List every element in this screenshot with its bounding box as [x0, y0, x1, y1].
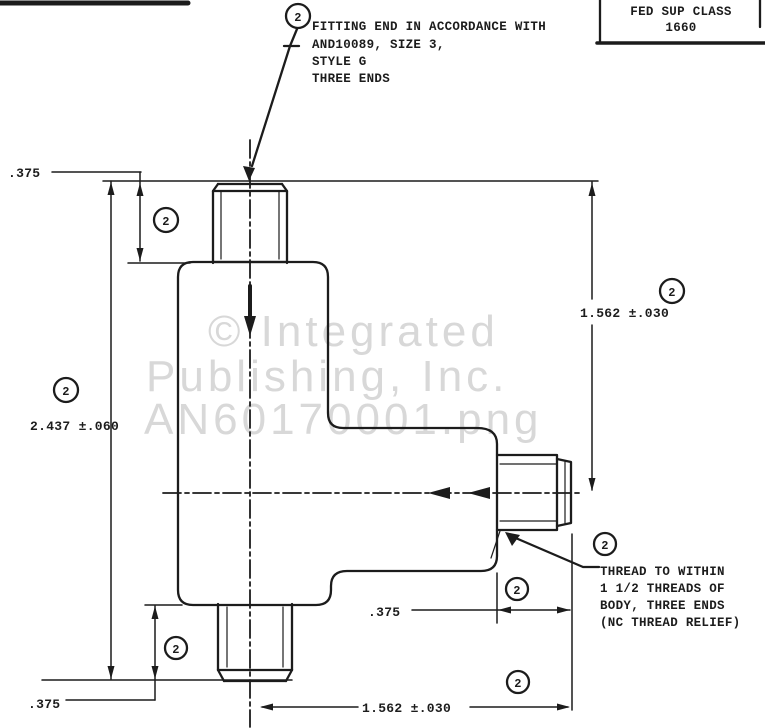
dim-left-2437-value: 2.437 ±.060	[30, 419, 119, 434]
dim-right-1562-value: 1.562 ±.030	[580, 306, 669, 321]
flow-arrow-left-icon	[468, 487, 490, 499]
flag-bottom-left: 2	[165, 637, 187, 659]
flag-right: 2	[660, 279, 684, 303]
flag-value: 2	[172, 643, 180, 657]
arrowhead-icon	[137, 248, 144, 261]
title-block: FED SUP CLASS 1660	[597, 0, 765, 43]
arrowhead-icon	[137, 183, 144, 196]
arrowhead-icon	[589, 183, 596, 196]
fitting-note-line4: THREE ENDS	[312, 72, 390, 86]
fitting-note-line1: FITTING END IN ACCORDANCE WITH	[312, 20, 546, 34]
fed-sup-class-label: FED SUP CLASS	[630, 5, 732, 19]
flag-mid-375: 2	[506, 578, 528, 600]
thread-note: THREAD TO WITHIN 1 1/2 THREADS OF BODY, …	[505, 532, 740, 630]
flag-value: 2	[513, 584, 521, 598]
fitting-note-line3: STYLE G	[312, 55, 367, 69]
arrowhead-icon	[108, 666, 115, 679]
side-boss	[491, 455, 571, 558]
fitting-note-line2: AND10089, SIZE 3,	[312, 38, 445, 52]
fed-sup-class-value: 1660	[665, 21, 696, 35]
dim-left-2437: 2.437 ±.060	[30, 181, 119, 679]
arrowhead-icon	[108, 182, 115, 195]
dim-bottom-left-375: .375	[28, 606, 159, 712]
flag-thread-note: 2	[594, 533, 616, 555]
thread-note-line1: THREAD TO WITHIN	[600, 565, 725, 579]
thread-note-line4: (NC THREAD RELIEF)	[600, 616, 740, 630]
arrowhead-icon	[152, 666, 159, 679]
flag-value: 2	[294, 11, 302, 25]
extension-lines	[42, 181, 598, 710]
arrowhead-icon	[498, 607, 511, 614]
flag-value: 2	[514, 677, 522, 691]
fitting-end-note: FITTING END IN ACCORDANCE WITH AND10089,…	[243, 20, 546, 181]
dim-bottom-1562: 1.562 ±.030	[260, 701, 570, 716]
flag-value: 2	[62, 385, 70, 399]
watermark: © Integrated Publishing, Inc. AN60170001…	[144, 307, 543, 444]
flag-top-left: 2	[154, 208, 178, 232]
thread-note-line2: 1 1/2 THREADS OF	[600, 582, 725, 596]
flag-left: 2	[54, 378, 78, 402]
flow-arrow-left-icon	[428, 487, 450, 499]
arrowhead-icon	[260, 704, 273, 711]
flag-top: 2	[286, 4, 310, 28]
bottom-boss	[218, 604, 292, 681]
arrowhead-icon	[152, 606, 159, 619]
leader-arrowhead-icon	[243, 166, 255, 181]
flag-value: 2	[668, 286, 676, 300]
arrowhead-icon	[589, 478, 596, 491]
dim-top-375-value: .375	[8, 166, 40, 181]
flag-bottom-right: 2	[507, 671, 529, 693]
flag-value: 2	[601, 539, 609, 553]
thread-relief-flare	[491, 531, 500, 558]
dim-bottom-1562-value: 1.562 ±.030	[362, 701, 451, 716]
watermark-line3: AN60170001.png	[144, 395, 543, 444]
drawing-canvas: © Integrated Publishing, Inc. AN60170001…	[0, 0, 765, 728]
dim-mid-375-value: .375	[368, 605, 400, 620]
dim-bottom-left-375-value: .375	[28, 697, 60, 712]
thread-note-line3: BODY, THREE ENDS	[600, 599, 725, 613]
engineering-drawing-page: © Integrated Publishing, Inc. AN60170001…	[0, 0, 765, 728]
dim-mid-375: .375	[368, 605, 570, 620]
flag-value: 2	[162, 215, 170, 229]
arrowhead-icon	[557, 704, 570, 711]
dim-right-1562: 1.562 ±.030	[580, 182, 669, 491]
arrowhead-icon	[557, 607, 570, 614]
